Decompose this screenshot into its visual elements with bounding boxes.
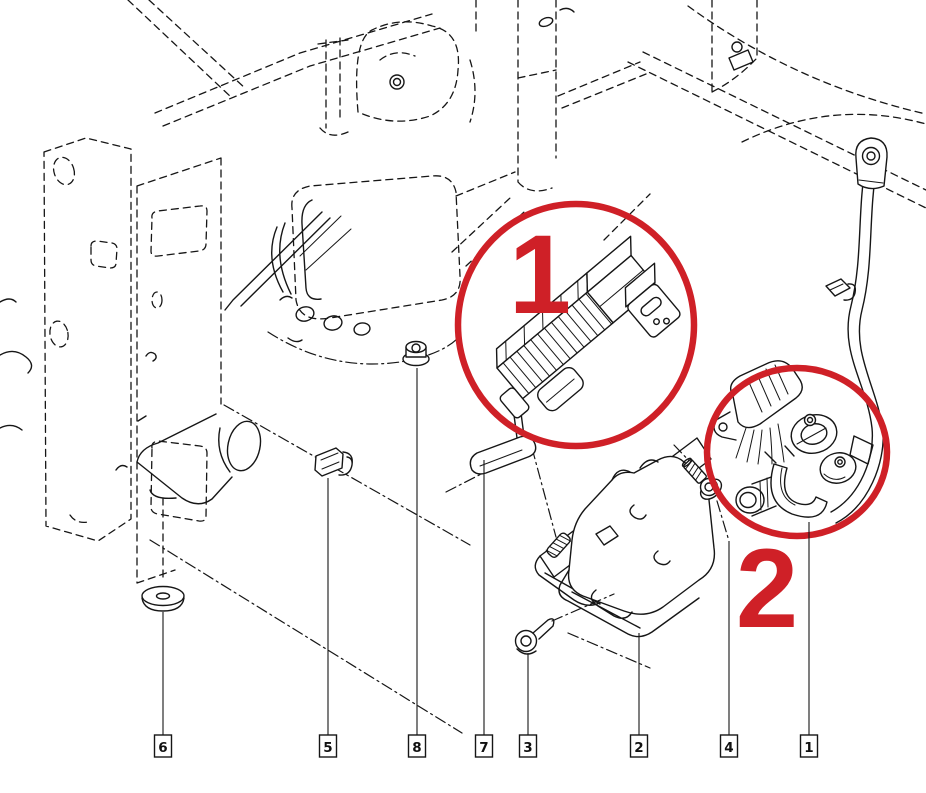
nut-8-drawing (403, 342, 429, 366)
callout-label-3: 3 (523, 740, 532, 756)
clip-5-drawing (315, 448, 352, 476)
washer-6-drawing (142, 498, 184, 611)
callout-label-2: 2 (634, 740, 643, 756)
gasket-drawing (225, 176, 460, 364)
callout-label-4: 4 (724, 740, 733, 756)
callout-label-1: 1 (804, 740, 813, 756)
highlight-number-2: 2 (736, 526, 798, 651)
cable-clip (826, 279, 850, 296)
lower-bracket-drawing (559, 456, 714, 636)
callout-label-6: 6 (158, 740, 167, 756)
callout-label-7: 7 (479, 740, 488, 756)
parts-diagram: 1 2 6 5 8 7 3 2 4 1 (0, 0, 926, 793)
corrugated-hose (771, 464, 827, 517)
callout-label-5: 5 (323, 740, 332, 756)
callout-label-8: 8 (412, 740, 421, 756)
highlight-number-1: 1 (509, 212, 571, 337)
callouts: 6 5 8 7 3 2 4 1 (155, 368, 818, 757)
left-bracket-drawing (44, 138, 265, 583)
